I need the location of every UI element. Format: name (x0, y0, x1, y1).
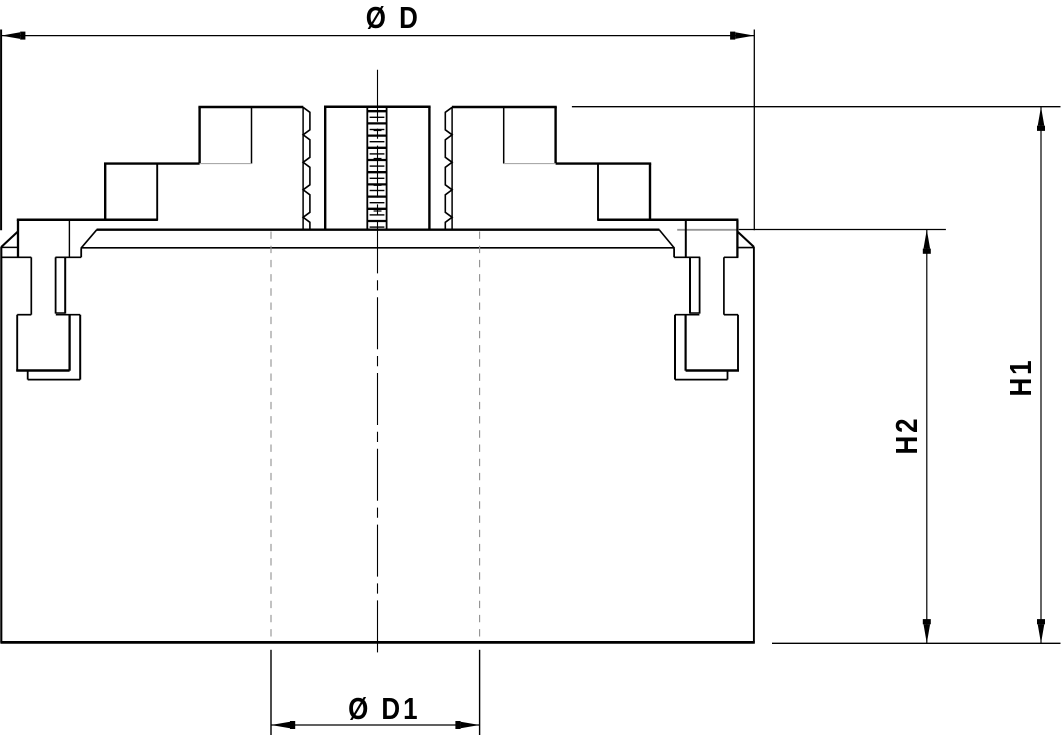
svg-text:Ø D: Ø D (366, 0, 421, 34)
svg-text:H2: H2 (889, 415, 923, 454)
svg-text:H1: H1 (1003, 357, 1037, 396)
svg-text:Ø D1: Ø D1 (348, 691, 420, 725)
